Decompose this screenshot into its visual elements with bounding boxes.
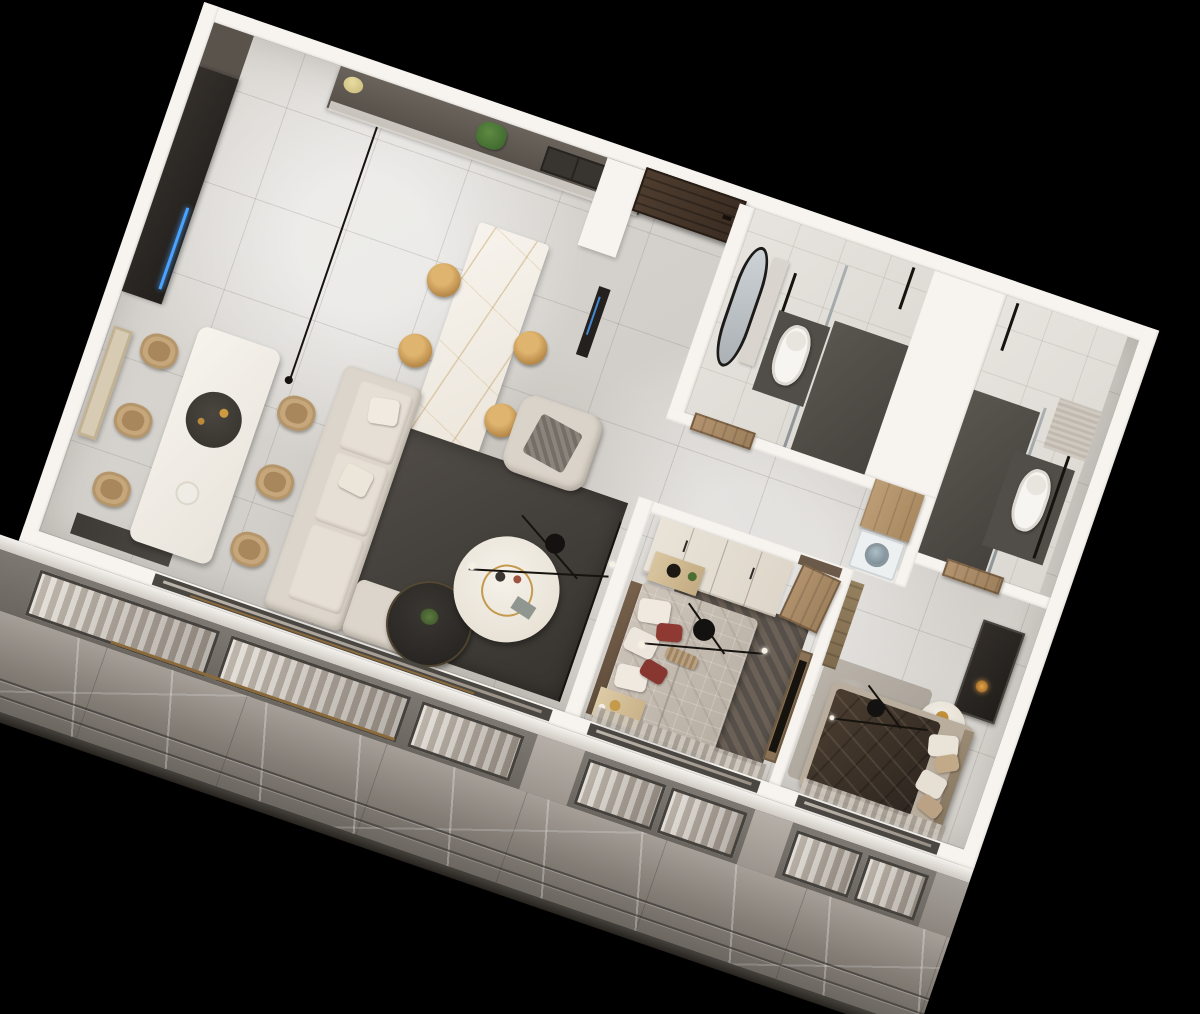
bed-pillow-white bbox=[637, 597, 672, 626]
sofa-pillow bbox=[367, 397, 401, 427]
bed-pillow-red bbox=[656, 623, 683, 643]
floorplan-rotated-group bbox=[0, 2, 1159, 1014]
scene-canvas bbox=[0, 0, 1200, 1014]
